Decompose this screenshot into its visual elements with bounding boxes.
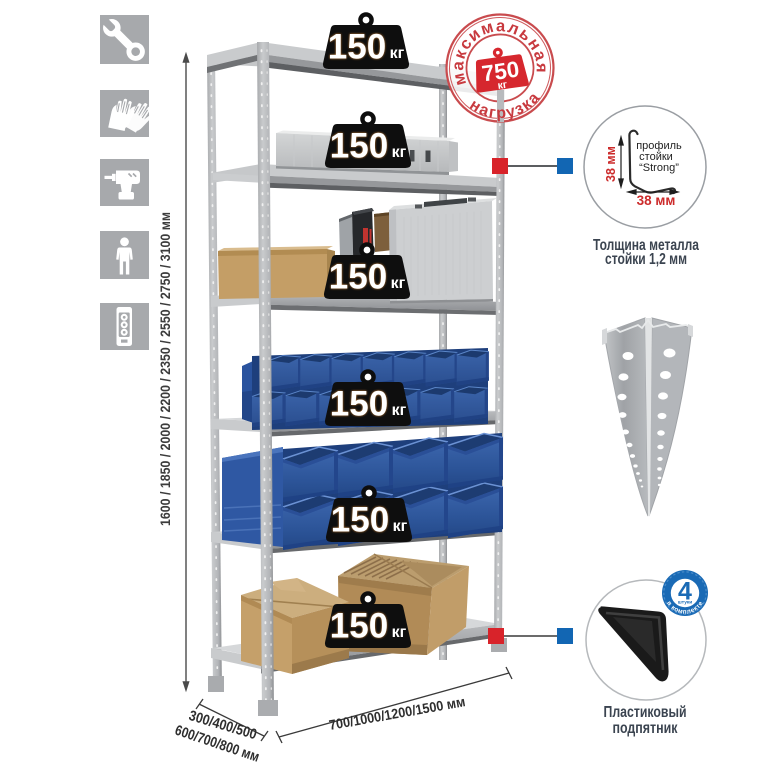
svg-text:стойки 1,2 мм: стойки 1,2 мм [605, 251, 687, 268]
svg-text:“Strong”: “Strong” [639, 162, 679, 174]
svg-text:Пластиковый: Пластиковый [604, 704, 687, 721]
svg-text:38 мм: 38 мм [637, 193, 676, 208]
svg-text:подпятник: подпятник [613, 720, 679, 737]
svg-text:штуки: штуки [678, 601, 693, 606]
svg-text:38 мм: 38 мм [604, 146, 618, 182]
svg-text:1600 / 1850 / 2000 / 2200 / 23: 1600 / 1850 / 2000 / 2200 / 2350 / 2550 … [158, 212, 173, 526]
